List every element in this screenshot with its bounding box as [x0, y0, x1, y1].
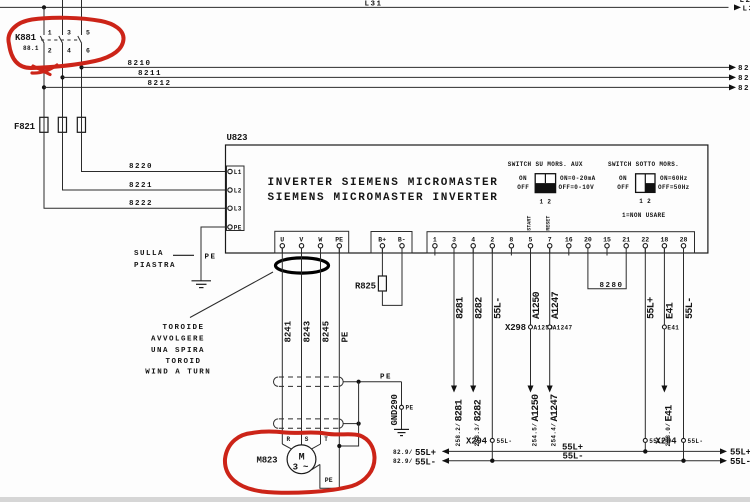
svg-text:28: 28: [680, 236, 688, 243]
svg-text:21: 21: [622, 236, 630, 243]
svg-text:S: S: [305, 436, 309, 443]
svg-text:5: 5: [86, 30, 90, 37]
svg-text:W: W: [318, 236, 322, 243]
svg-text:E41: E41: [667, 324, 679, 331]
svg-text:A1250: A1250: [531, 394, 542, 422]
svg-text:TOROID: TOROID: [166, 358, 202, 366]
svg-text:WIND A TURN: WIND A TURN: [145, 369, 211, 377]
svg-text:U: U: [280, 236, 284, 243]
svg-text:A1250: A1250: [532, 291, 543, 319]
svg-text:PE: PE: [205, 254, 217, 262]
svg-text:E41: E41: [666, 302, 677, 319]
svg-text:L31: L31: [365, 1, 383, 9]
svg-text:OFF: OFF: [617, 184, 629, 191]
svg-text:8280: 8280: [600, 282, 624, 290]
svg-text:V: V: [299, 236, 303, 243]
svg-text:8241: 8241: [283, 320, 293, 342]
svg-text:55L-: 55L-: [563, 452, 584, 462]
svg-text:1 2: 1 2: [639, 198, 651, 205]
svg-text:SIEMENS MICROMASTER INVERTER: SIEMENS MICROMASTER INVERTER: [268, 192, 499, 204]
svg-text:OFF: OFF: [517, 184, 529, 191]
svg-text:UNA SPIRA: UNA SPIRA: [151, 347, 205, 355]
svg-text:M823: M823: [257, 456, 278, 466]
svg-text:ON=0-20mA: ON=0-20mA: [560, 175, 596, 182]
svg-text:2: 2: [48, 48, 52, 55]
svg-text:8281: 8281: [454, 399, 465, 421]
svg-text:SWITCH SOTTO MORS.: SWITCH SOTTO MORS.: [608, 161, 679, 168]
svg-text:ON=60Hz: ON=60Hz: [660, 175, 688, 182]
svg-text:A1247: A1247: [551, 291, 562, 319]
svg-text:SWITCH SU MORS. AUX: SWITCH SU MORS. AUX: [508, 161, 583, 168]
svg-text:55L-: 55L-: [494, 297, 505, 319]
svg-text:R: R: [287, 436, 291, 443]
svg-text:55L-: 55L-: [497, 438, 513, 445]
svg-text:F821: F821: [14, 122, 36, 132]
svg-text:8221: 8221: [129, 182, 153, 190]
svg-text:4: 4: [67, 48, 71, 55]
svg-text:RESET: RESET: [546, 216, 552, 231]
svg-text:8211: 8211: [738, 75, 750, 83]
svg-text:254.5/: 254.5/: [531, 423, 538, 447]
svg-text:6: 6: [86, 48, 90, 55]
svg-text:8: 8: [509, 236, 513, 243]
svg-text:8220: 8220: [129, 163, 153, 171]
svg-text:3 ~: 3 ~: [293, 463, 309, 473]
svg-text:INVERTER SIEMENS MICROMASTER: INVERTER SIEMENS MICROMASTER: [268, 177, 499, 189]
svg-text:PIASTRA: PIASTRA: [134, 262, 176, 270]
svg-text:A1247: A1247: [550, 394, 561, 422]
svg-text:1=NON USARE: 1=NON USARE: [622, 212, 666, 219]
svg-text:8282: 8282: [474, 399, 485, 421]
svg-text:OFF=50Hz: OFF=50Hz: [658, 184, 690, 191]
svg-text:1: 1: [48, 30, 52, 37]
svg-text:258.2/: 258.2/: [455, 423, 462, 447]
svg-text:X294: X294: [466, 437, 488, 447]
svg-text:PE: PE: [325, 477, 333, 484]
svg-text:T: T: [324, 436, 328, 443]
svg-text:8212: 8212: [738, 85, 750, 93]
svg-text:L31: L31: [743, 5, 750, 13]
svg-text:K881: K881: [15, 33, 37, 43]
svg-text:START: START: [527, 216, 533, 231]
svg-text:88.1: 88.1: [23, 45, 39, 52]
svg-text:8210: 8210: [128, 60, 152, 68]
svg-text:55L-: 55L-: [688, 438, 704, 445]
svg-text:X298: X298: [505, 323, 526, 333]
svg-text:X294: X294: [656, 437, 678, 447]
svg-text:AVVOLGERE: AVVOLGERE: [151, 335, 205, 343]
svg-text:4: 4: [471, 236, 475, 243]
svg-text:PE: PE: [335, 236, 343, 243]
svg-text:16: 16: [565, 236, 573, 243]
svg-text:OFF=0-10V: OFF=0-10V: [559, 184, 595, 191]
svg-text:1 2: 1 2: [540, 198, 552, 205]
svg-text:U823: U823: [227, 133, 248, 143]
svg-text:PE: PE: [340, 331, 350, 342]
svg-text:L1: L1: [234, 169, 242, 176]
svg-text:18: 18: [661, 236, 669, 243]
svg-text:E41: E41: [665, 405, 676, 422]
svg-text:8282: 8282: [475, 297, 486, 319]
svg-text:82.9/: 82.9/: [393, 458, 413, 465]
svg-text:1: 1: [433, 236, 437, 243]
svg-text:SULLA: SULLA: [134, 250, 164, 258]
svg-text:ON: ON: [519, 175, 527, 182]
svg-text:3: 3: [452, 236, 456, 243]
svg-text:PE: PE: [234, 224, 242, 231]
svg-text:82.9/: 82.9/: [393, 449, 413, 456]
svg-text:PE: PE: [380, 373, 392, 381]
svg-text:55L-: 55L-: [685, 297, 696, 319]
svg-text:22: 22: [641, 236, 649, 243]
svg-text:L2: L2: [234, 187, 242, 194]
svg-text:R825: R825: [355, 282, 376, 292]
svg-text:8245: 8245: [322, 321, 332, 343]
svg-text:8243: 8243: [303, 321, 313, 343]
svg-text:8210: 8210: [738, 65, 750, 73]
svg-text:8212: 8212: [148, 80, 172, 88]
svg-text:20: 20: [584, 236, 592, 243]
svg-text:2: 2: [490, 236, 494, 243]
svg-text:GND290: GND290: [390, 394, 400, 425]
svg-text:55L+: 55L+: [647, 297, 658, 319]
svg-text:55L-: 55L-: [415, 457, 436, 467]
svg-text:3: 3: [67, 30, 71, 37]
svg-text:8222: 8222: [129, 200, 153, 208]
svg-text:8211: 8211: [138, 70, 162, 78]
svg-text:8281: 8281: [455, 297, 466, 319]
svg-text:A1247: A1247: [553, 324, 573, 331]
svg-text:ON: ON: [619, 175, 627, 182]
svg-text:B-: B-: [398, 236, 406, 243]
svg-text:PE: PE: [406, 405, 414, 412]
svg-text:55L-: 55L-: [730, 457, 750, 467]
svg-text:15: 15: [603, 236, 611, 243]
svg-text:5: 5: [529, 236, 533, 243]
svg-text:L3: L3: [234, 206, 242, 213]
svg-text:B+: B+: [378, 236, 386, 243]
svg-text:TOROIDE: TOROIDE: [163, 324, 205, 332]
svg-text:L21: L21: [740, 0, 750, 5]
svg-text:254.4/: 254.4/: [551, 423, 558, 447]
svg-text:7: 7: [548, 236, 552, 243]
